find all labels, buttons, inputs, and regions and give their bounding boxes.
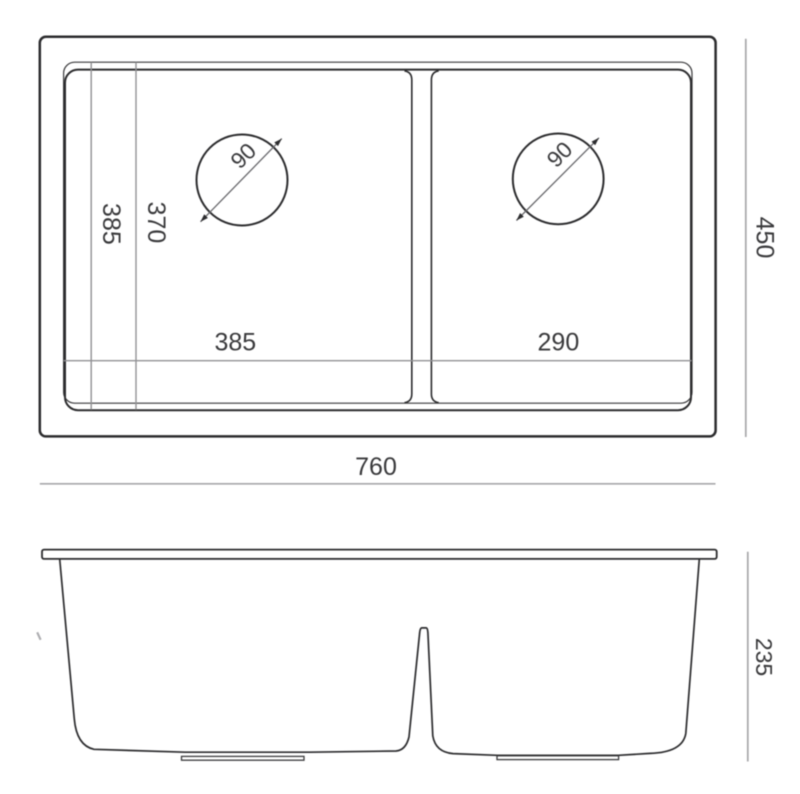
svg-text:385: 385 (214, 329, 256, 357)
svg-text:385: 385 (97, 203, 125, 245)
svg-text:90: 90 (226, 138, 261, 173)
svg-text:290: 290 (538, 329, 580, 357)
svg-text:370: 370 (142, 202, 170, 244)
svg-text:235: 235 (751, 638, 777, 676)
svg-text:450: 450 (751, 217, 779, 259)
svg-text:760: 760 (355, 453, 397, 481)
svg-text:90: 90 (542, 137, 577, 172)
